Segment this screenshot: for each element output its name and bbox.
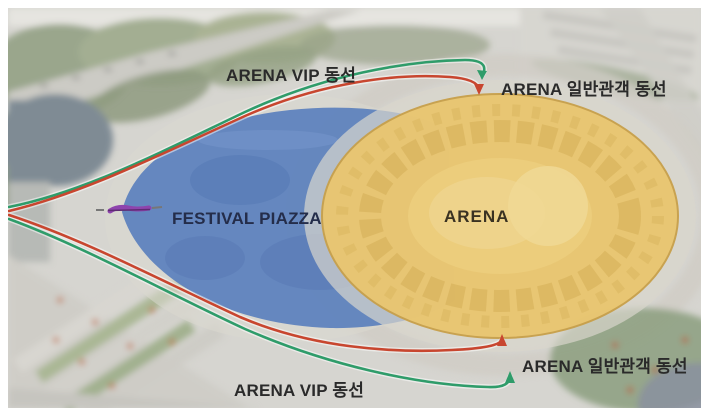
aerial-photo: ARENA VIP 동선 ARENA 일반관객 동선 ARENA FESTIVA…	[8, 8, 701, 408]
vip-route-label-top: ARENA VIP 동선	[226, 67, 356, 86]
general-route-label-bottom: ARENA 일반관객 동선	[522, 358, 688, 377]
vip-route-label-bottom: ARENA VIP 동선	[234, 382, 364, 401]
general-route-label-top: ARENA 일반관객 동선	[501, 81, 667, 100]
arena-label: ARENA	[444, 208, 509, 227]
festival-piazza-label: FESTIVAL PIAZZA	[172, 210, 322, 229]
